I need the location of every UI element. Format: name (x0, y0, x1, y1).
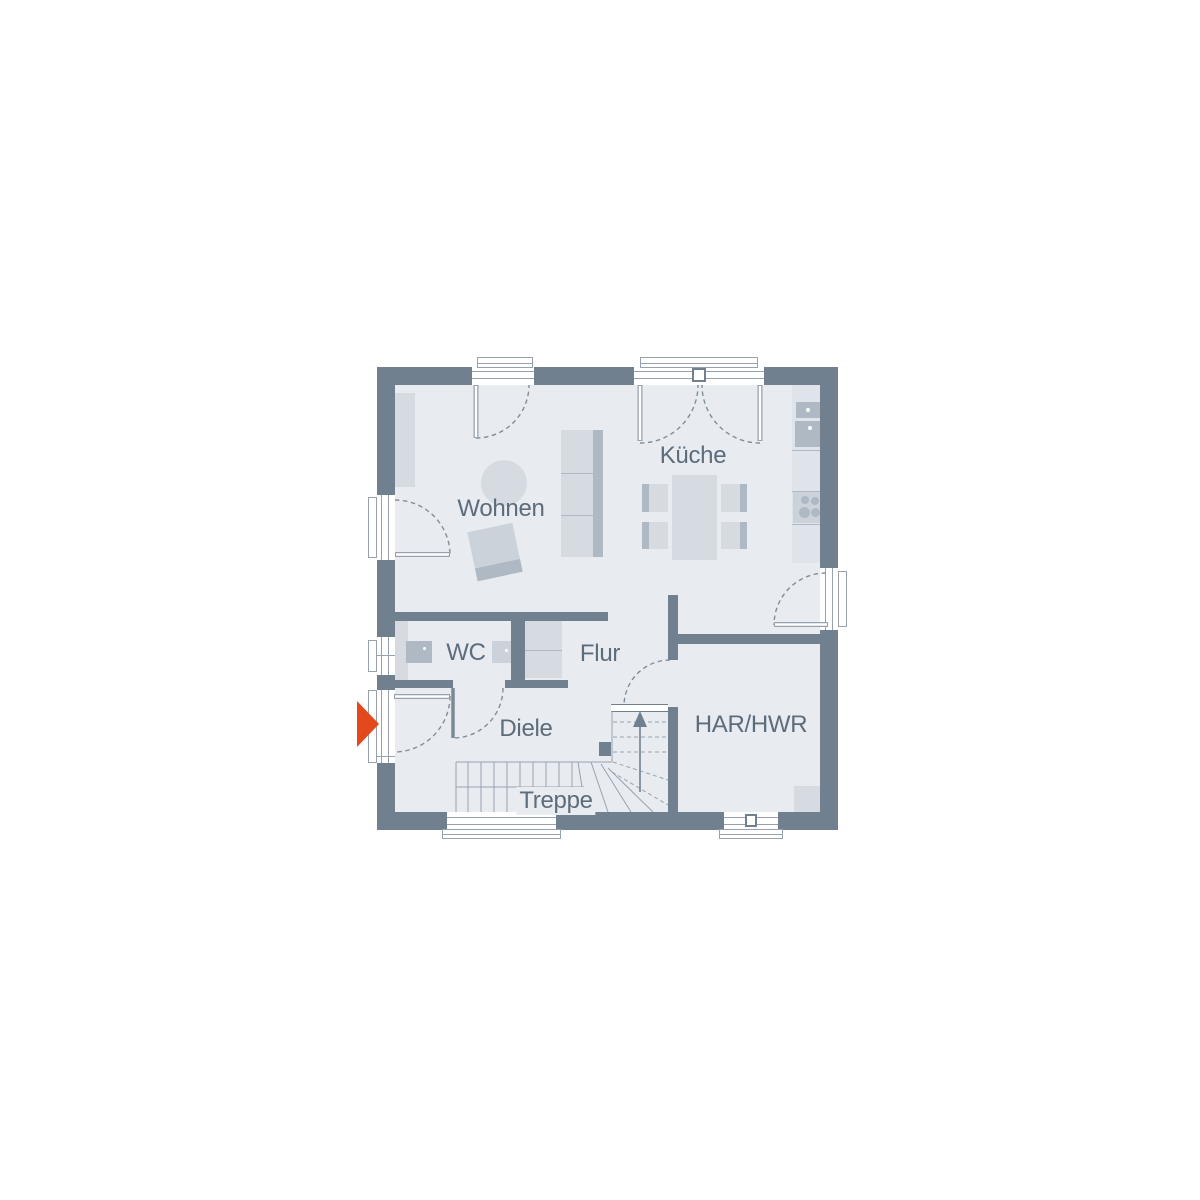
room-label-wohnen: Wohnen (457, 495, 544, 523)
sofa-backrest (593, 430, 603, 557)
wall (778, 812, 838, 830)
armchair (467, 523, 522, 581)
interior-wall (505, 680, 568, 688)
window-post-symbol (745, 814, 757, 827)
wall (820, 630, 838, 812)
chair (721, 484, 747, 512)
stair-top-edge (611, 704, 668, 712)
chair (721, 522, 747, 549)
window-sill (368, 640, 377, 672)
room-label-har-hwr: HAR/HWR (695, 711, 808, 739)
door-sill (838, 571, 847, 627)
wall (377, 560, 395, 637)
window-sill (640, 357, 758, 368)
oven (795, 421, 820, 447)
kitchen-sink (796, 402, 820, 418)
side-door-opening (820, 568, 838, 630)
chair (642, 484, 668, 512)
window-sill (719, 829, 783, 839)
door-sill (368, 690, 377, 763)
terrace-door-opening (377, 495, 395, 560)
toilet (492, 641, 513, 663)
sideboard (395, 393, 415, 487)
stair-newel-post (599, 742, 611, 756)
wall (377, 675, 395, 690)
wardrobe (525, 618, 562, 678)
window-sill (477, 357, 533, 368)
room-label-wc: WC (446, 639, 485, 667)
interior-wall (668, 595, 678, 660)
window-sill (368, 497, 377, 558)
interior-wall (395, 612, 608, 621)
terrace-door-opening (472, 367, 534, 385)
dining-table (672, 475, 717, 560)
wall (377, 763, 395, 812)
entrance-door-opening (377, 690, 395, 763)
wall (764, 367, 838, 385)
cooktop (793, 492, 820, 523)
washbasin (406, 641, 432, 663)
wall (377, 385, 395, 495)
room-label-diele: Diele (499, 715, 552, 743)
wall (377, 367, 472, 385)
door-post-symbol (692, 368, 706, 382)
room-label-kueche: Küche (660, 442, 727, 470)
room-label-treppe: Treppe (516, 787, 595, 815)
utility-equipment (794, 786, 820, 812)
interior-wall (511, 621, 525, 680)
wall (820, 385, 838, 568)
window-sill (442, 829, 561, 839)
window (377, 637, 395, 675)
interior-wall (677, 634, 820, 644)
floor-plan: Wohnen Küche WC Flur Diele Treppe HAR/HW… (0, 0, 1200, 1200)
wall (377, 812, 447, 830)
room-label-flur: Flur (580, 640, 620, 668)
interior-wall (668, 707, 678, 812)
interior-wall (395, 680, 453, 688)
wall (534, 367, 634, 385)
chair (642, 522, 668, 549)
sofa (561, 430, 593, 557)
